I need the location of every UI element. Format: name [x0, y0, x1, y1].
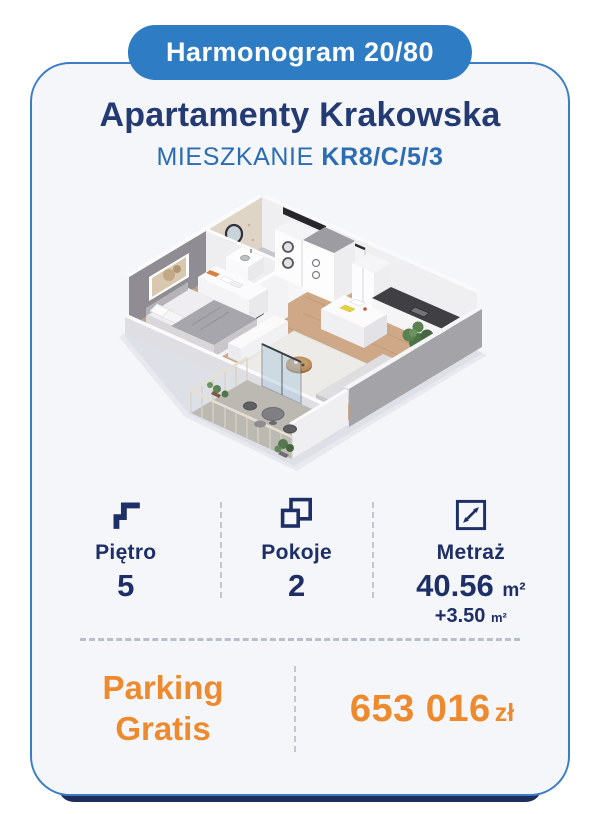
stat-floor-value: 5	[117, 568, 134, 604]
floorplan-illustration	[97, 184, 507, 494]
area-resize-icon	[454, 494, 488, 532]
schedule-badge-label: Harmonogram 20/80	[166, 37, 434, 67]
apartment-code: KR8/C/5/3	[321, 143, 443, 171]
stat-rooms-label: Pokoje	[261, 541, 332, 565]
apartment-listing-page: Harmonogram 20/80 Apartamenty Krakowska …	[0, 0, 600, 814]
bathroom-cabinet	[303, 227, 355, 303]
rooms-icon	[279, 494, 315, 532]
stat-rooms-value: 2	[288, 568, 305, 604]
floorplan-3d-image	[97, 184, 507, 494]
stat-floor-label: Piętro	[95, 541, 156, 565]
stat-rooms: Pokoje 2	[222, 494, 372, 604]
area-number: 40.56	[416, 568, 494, 603]
footer-row: Parking Gratis 653 016zł	[32, 656, 568, 762]
promo-line2: Gratis	[32, 709, 294, 750]
stairs-icon	[109, 494, 143, 532]
promo-line1: Parking	[32, 668, 294, 709]
area-extra-unit: m²	[491, 610, 507, 625]
price-currency: zł	[495, 699, 514, 727]
subtitle-prefix: MIESZKANIE	[156, 143, 313, 171]
price: 653 016zł	[296, 688, 568, 731]
stat-area-extra: +3.50 m²	[435, 605, 507, 628]
stat-area: Metraż 40.56 m² +3.50 m²	[374, 494, 568, 628]
horizontal-dashed-divider	[80, 638, 520, 641]
stat-floor: Piętro 5	[32, 494, 220, 604]
area-extra-number: +3.50	[435, 605, 486, 627]
stats-row: Piętro 5 Pokoje 2	[32, 494, 568, 628]
stat-area-label: Metraż	[437, 541, 505, 565]
listing-card[interactable]: Apartamenty Krakowska MIESZKANIE KR8/C/5…	[30, 62, 570, 796]
price-amount: 653 016	[350, 688, 491, 730]
schedule-badge: Harmonogram 20/80	[128, 25, 472, 80]
promo-parking: Parking Gratis	[32, 668, 294, 750]
area-unit: m²	[502, 580, 525, 601]
stat-area-value: 40.56 m²	[416, 568, 525, 604]
apartment-subtitle: MIESZKANIE KR8/C/5/3	[32, 143, 568, 172]
page-title: Apartamenty Krakowska	[32, 96, 568, 135]
